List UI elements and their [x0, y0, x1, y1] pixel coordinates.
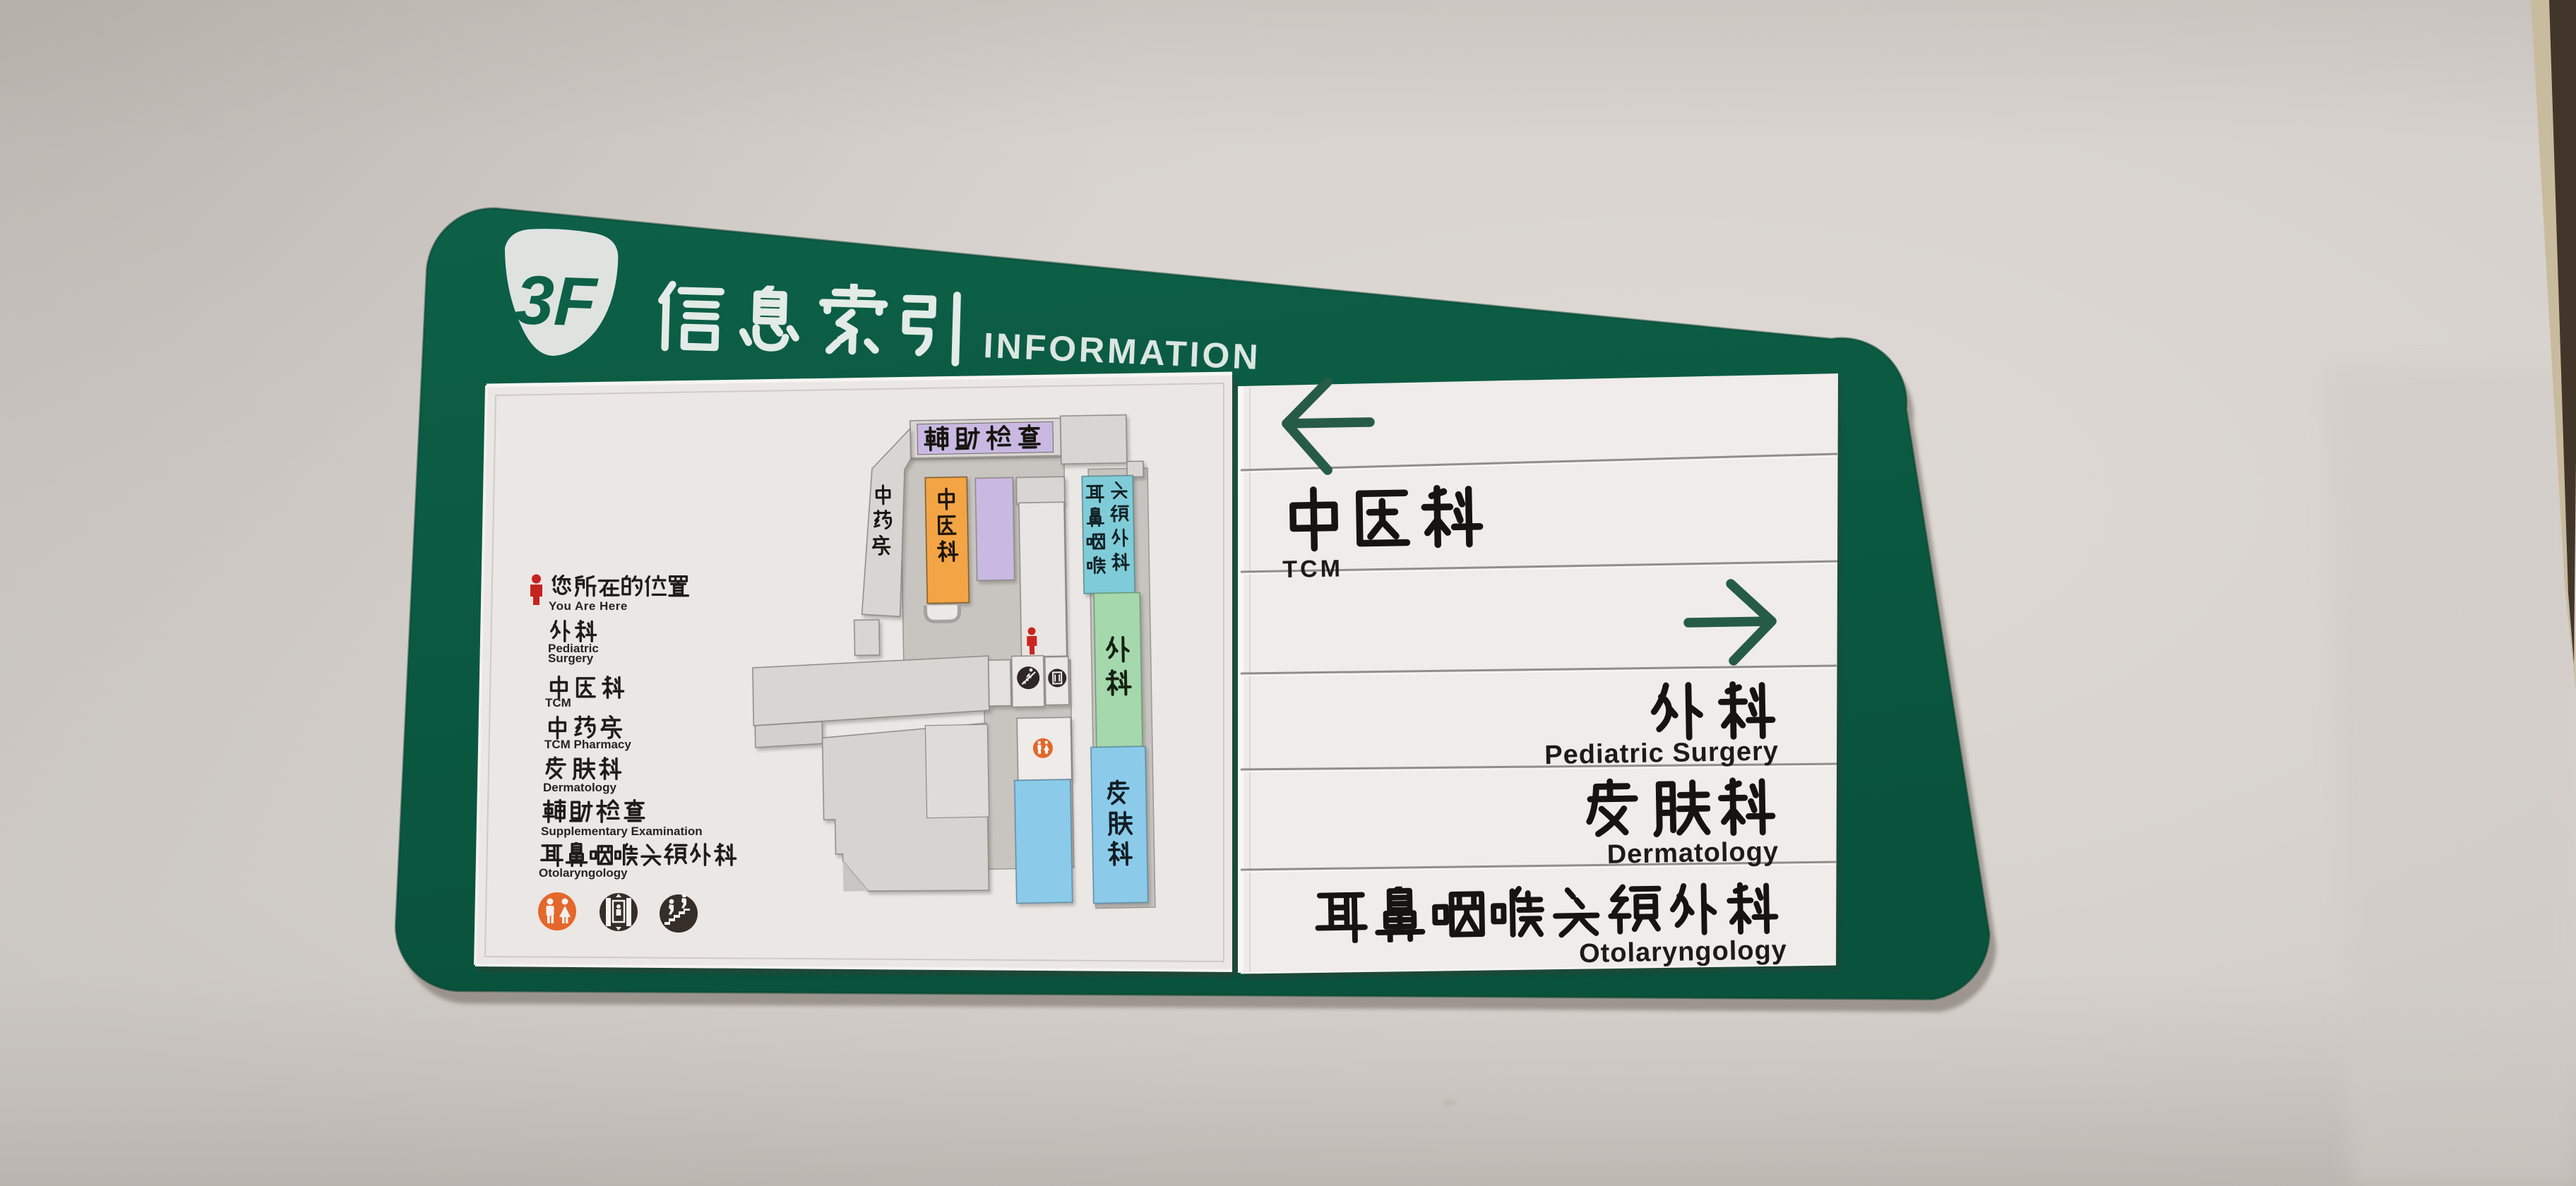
svg-text:Otolaryngology: Otolaryngology [539, 866, 628, 880]
svg-text:TCM: TCM [1282, 555, 1343, 582]
svg-text:Dermatology: Dermatology [1606, 837, 1779, 870]
svg-text:Surgery: Surgery [548, 652, 594, 665]
svg-text:TCM: TCM [545, 696, 571, 709]
svg-text:Supplementary Examination: Supplementary Examination [541, 825, 703, 838]
svg-text:Pediatric Surgery: Pediatric Surgery [1544, 736, 1779, 770]
svg-text:Dermatology: Dermatology [543, 781, 616, 794]
svg-text:TCM Pharmacy: TCM Pharmacy [544, 738, 631, 751]
svg-text:You Are Here: You Are Here [549, 599, 628, 613]
svg-text:3F: 3F [514, 260, 599, 341]
svg-text:Otolaryngology: Otolaryngology [1579, 935, 1787, 969]
